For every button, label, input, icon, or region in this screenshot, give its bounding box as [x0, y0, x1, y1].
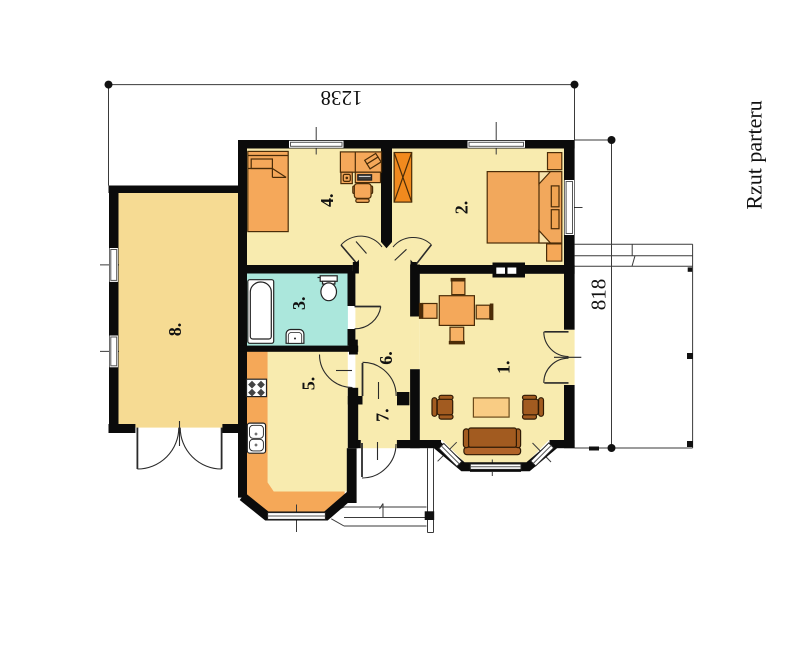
- svg-text:1238: 1238: [321, 86, 363, 110]
- svg-text:8.: 8.: [165, 323, 185, 337]
- svg-text:6.: 6.: [376, 351, 396, 365]
- svg-text:7.: 7.: [372, 408, 392, 422]
- svg-text:4.: 4.: [317, 193, 337, 207]
- svg-text:3.: 3.: [289, 297, 309, 311]
- svg-text:Rzut parteru: Rzut parteru: [742, 100, 767, 209]
- svg-text:5.: 5.: [299, 377, 319, 391]
- svg-text:2.: 2.: [452, 201, 472, 215]
- svg-text:818: 818: [587, 279, 611, 311]
- svg-text:1.: 1.: [494, 361, 514, 375]
